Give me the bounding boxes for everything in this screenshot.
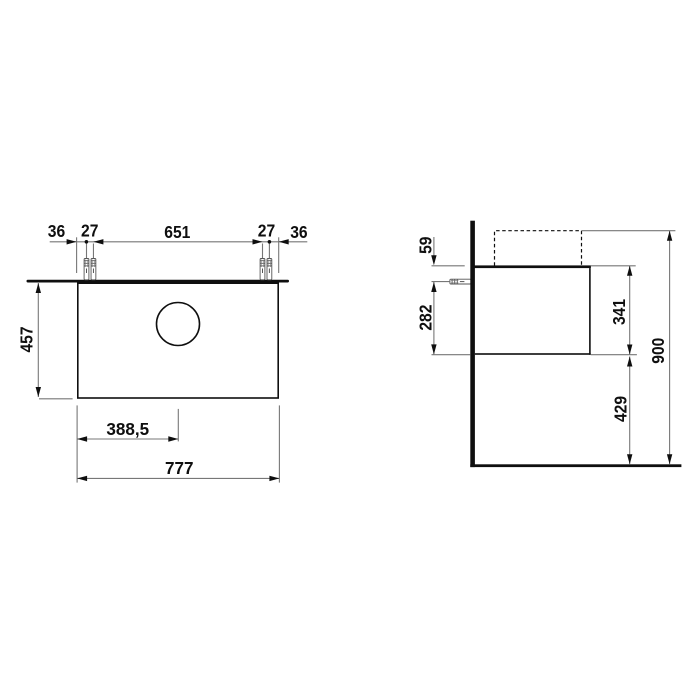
svg-text:900: 900 — [648, 338, 668, 364]
svg-text:27: 27 — [81, 220, 98, 240]
svg-text:429: 429 — [610, 396, 630, 422]
svg-text:651: 651 — [164, 222, 190, 242]
svg-text:36: 36 — [290, 222, 307, 242]
svg-text:457: 457 — [17, 326, 37, 352]
svg-text:59: 59 — [415, 236, 435, 253]
svg-text:777: 777 — [165, 458, 194, 479]
svg-text:388,5: 388,5 — [106, 418, 149, 439]
svg-text:27: 27 — [258, 220, 275, 240]
svg-text:282: 282 — [415, 305, 435, 331]
svg-text:341: 341 — [609, 299, 629, 325]
svg-text:36: 36 — [48, 221, 65, 241]
